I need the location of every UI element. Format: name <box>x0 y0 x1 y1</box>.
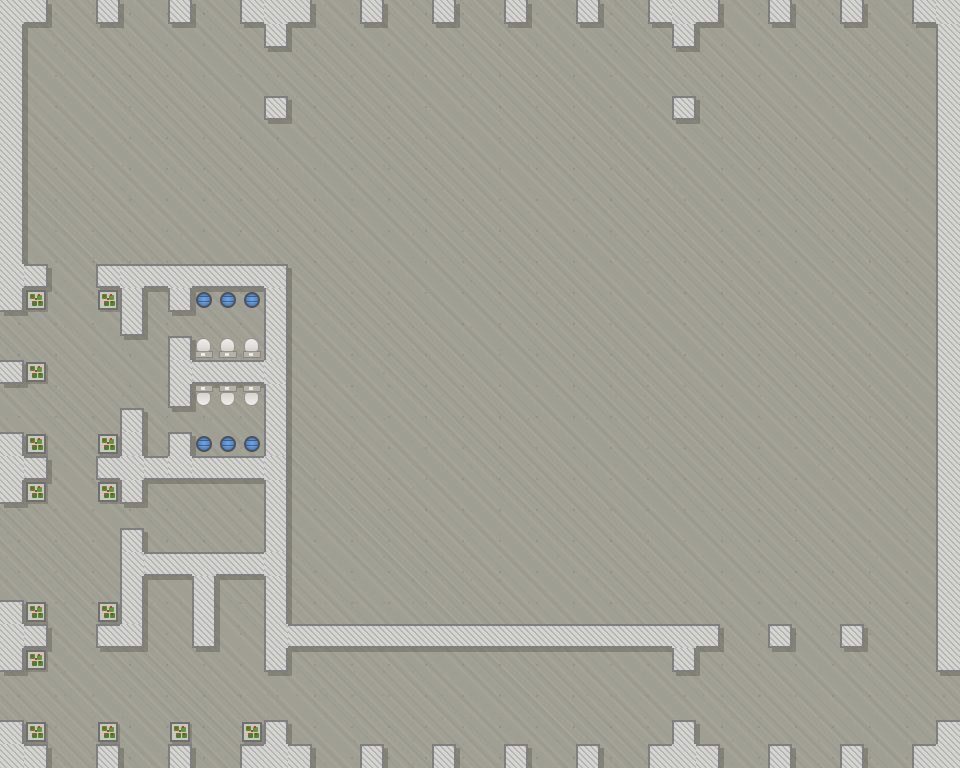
wall-tile <box>936 336 960 360</box>
wall-tile <box>264 432 288 456</box>
planter-bush[interactable] <box>242 722 262 742</box>
planter-bush[interactable] <box>26 290 46 310</box>
wall-tile <box>840 624 864 648</box>
planter-berries <box>103 607 105 609</box>
wall-tile <box>432 0 456 24</box>
toilet[interactable] <box>192 384 216 408</box>
wall-tile <box>936 264 960 288</box>
wall-tile <box>168 456 192 480</box>
wall-tile <box>648 624 672 648</box>
wall-tile <box>216 264 240 288</box>
wall-tile <box>264 336 288 360</box>
wall-tile <box>192 552 216 576</box>
wall-tile <box>936 216 960 240</box>
planter-berries <box>247 727 249 729</box>
wall-tile <box>576 624 600 648</box>
wall-tile <box>144 552 168 576</box>
planter-bush[interactable] <box>26 650 46 670</box>
wall-tile <box>168 384 192 408</box>
wall-tile <box>96 0 120 24</box>
planter-bush[interactable] <box>98 602 118 622</box>
wall-tile <box>120 288 144 312</box>
toilet-tank <box>195 351 213 358</box>
wall-tile <box>120 312 144 336</box>
planter-bush[interactable] <box>170 722 190 742</box>
wall-tile <box>360 624 384 648</box>
wall-tile <box>240 0 264 24</box>
toilet-bowl <box>220 392 235 406</box>
wall-tile <box>936 648 960 672</box>
wall-tile <box>264 600 288 624</box>
planter-berries <box>31 439 33 441</box>
wall-tile <box>240 360 264 384</box>
planter-berries <box>31 487 33 489</box>
wall-tile <box>264 312 288 336</box>
wall-tile <box>672 24 696 48</box>
wall-tile <box>480 624 504 648</box>
wall-tile <box>192 360 216 384</box>
wall-tile <box>936 144 960 168</box>
toilet-tank <box>195 385 213 392</box>
wall-tile <box>0 648 24 672</box>
wall-tile <box>696 624 720 648</box>
sink[interactable] <box>220 292 236 308</box>
wall-tile <box>192 576 216 600</box>
wall-tile <box>0 168 24 192</box>
wall-tile <box>936 624 960 648</box>
planter-berries <box>31 727 33 729</box>
wall-tile <box>264 504 288 528</box>
wall-tile <box>360 0 384 24</box>
wall-tile <box>936 288 960 312</box>
sink[interactable] <box>244 292 260 308</box>
wall-tile <box>216 552 240 576</box>
sink[interactable] <box>196 436 212 452</box>
wall-tile <box>264 648 288 672</box>
wall-tile <box>24 456 48 480</box>
toilet-tank <box>243 351 261 358</box>
wall-tile <box>504 744 528 768</box>
wall-tile <box>912 0 936 24</box>
wall-tile <box>0 192 24 216</box>
wall-tile <box>936 24 960 48</box>
wall-tile <box>936 600 960 624</box>
wall-tile <box>312 624 336 648</box>
wall-tile <box>936 48 960 72</box>
wall-tile <box>120 576 144 600</box>
wall-tile <box>264 288 288 312</box>
wall-tile <box>192 264 216 288</box>
wall-tile <box>384 624 408 648</box>
wall-tile <box>120 600 144 624</box>
sink[interactable] <box>244 436 260 452</box>
sink[interactable] <box>196 292 212 308</box>
wall-tile <box>456 624 480 648</box>
wall-tile <box>672 648 696 672</box>
wall-tile <box>0 720 24 744</box>
wall-tile <box>768 0 792 24</box>
wall-tile <box>0 624 24 648</box>
wall-tile <box>264 24 288 48</box>
wall-tile <box>168 336 192 360</box>
wall-tile <box>936 312 960 336</box>
wall-tile <box>168 552 192 576</box>
wall-tile <box>0 600 24 624</box>
wall-tile <box>288 0 312 24</box>
wall-tile <box>168 360 192 384</box>
planter-berries <box>31 367 33 369</box>
wall-tile <box>936 456 960 480</box>
wall-tile <box>120 624 144 648</box>
wall-tile <box>432 744 456 768</box>
wall-tile <box>240 744 264 768</box>
wall-tile <box>504 0 528 24</box>
wall-tile <box>648 0 672 24</box>
wall-tile <box>936 504 960 528</box>
wall-tile <box>96 744 120 768</box>
wall-tile <box>0 360 24 384</box>
wall-tile <box>120 480 144 504</box>
wall-tile <box>936 72 960 96</box>
wall-tile <box>696 0 720 24</box>
game-map-viewport[interactable] <box>0 0 960 768</box>
planter-bush[interactable] <box>26 362 46 382</box>
wall-tile <box>264 408 288 432</box>
planter-bush[interactable] <box>26 434 46 454</box>
wall-tile <box>0 432 24 456</box>
toilet[interactable] <box>240 336 264 360</box>
toilet-bowl <box>220 338 235 352</box>
toilet[interactable] <box>240 384 264 408</box>
wall-tile <box>288 744 312 768</box>
wall-tile <box>840 744 864 768</box>
toilet-tank <box>219 385 237 392</box>
wall-tile <box>168 744 192 768</box>
planter-berries <box>103 439 105 441</box>
wall-tile <box>0 72 24 96</box>
toilet-tank <box>219 351 237 358</box>
wall-tile <box>264 624 288 648</box>
wall-tile <box>936 744 960 768</box>
wall-tile <box>672 624 696 648</box>
wall-tile <box>672 720 696 744</box>
wall-tile <box>936 528 960 552</box>
toilet[interactable] <box>216 336 240 360</box>
planter-berries <box>31 655 33 657</box>
wall-tile <box>576 0 600 24</box>
wall-tile <box>0 120 24 144</box>
wall-tile <box>192 600 216 624</box>
wall-tile <box>0 240 24 264</box>
wall-tile <box>168 432 192 456</box>
wall-tile <box>240 552 264 576</box>
wall-tile <box>264 384 288 408</box>
planter-berries <box>31 607 33 609</box>
planter-berries <box>103 487 105 489</box>
wall-tile <box>168 0 192 24</box>
wall-tile <box>0 744 24 768</box>
sink[interactable] <box>220 436 236 452</box>
wall-tile <box>936 552 960 576</box>
wall-tile <box>600 624 624 648</box>
wall-tile <box>336 624 360 648</box>
wall-tile <box>912 744 936 768</box>
wall-tile <box>144 264 168 288</box>
wall-tile <box>120 552 144 576</box>
wall-tile <box>264 360 288 384</box>
wall-tile <box>120 528 144 552</box>
wall-tile <box>528 624 552 648</box>
planter-berries <box>175 727 177 729</box>
wall-tile <box>192 456 216 480</box>
wall-tile <box>0 264 24 288</box>
wall-tile <box>0 480 24 504</box>
wall-tile <box>120 408 144 432</box>
wall-tile <box>696 744 720 768</box>
toilet[interactable] <box>192 336 216 360</box>
wall-tile <box>240 264 264 288</box>
wall-tile <box>96 624 120 648</box>
wall-tile <box>936 480 960 504</box>
wall-tile <box>936 408 960 432</box>
wall-tile <box>96 264 120 288</box>
toilet-bowl <box>196 338 211 352</box>
wall-tile <box>936 576 960 600</box>
wall-tile <box>936 96 960 120</box>
wall-tile <box>936 432 960 456</box>
wall-tile <box>648 744 672 768</box>
wall-tile <box>936 120 960 144</box>
wall-tile <box>144 456 168 480</box>
planter-berries <box>103 727 105 729</box>
wall-tile <box>576 744 600 768</box>
wall-tile <box>168 288 192 312</box>
planter-berries <box>31 295 33 297</box>
planter-bush[interactable] <box>98 290 118 310</box>
wall-tile <box>672 0 696 24</box>
wall-tile <box>0 288 24 312</box>
wall-tile <box>936 0 960 24</box>
wall-tile <box>0 96 24 120</box>
wall-tile <box>216 456 240 480</box>
wall-tile <box>264 96 288 120</box>
wall-tile <box>672 96 696 120</box>
wall-tile <box>264 264 288 288</box>
wall-tile <box>264 528 288 552</box>
wall-tile <box>24 0 48 24</box>
wall-tile <box>408 624 432 648</box>
wall-tile <box>936 168 960 192</box>
planter-bush[interactable] <box>26 482 46 502</box>
wall-tile <box>0 216 24 240</box>
wall-tile <box>264 480 288 504</box>
wall-tile <box>936 360 960 384</box>
wall-tile <box>24 744 48 768</box>
wall-tile <box>504 624 528 648</box>
toilet-bowl <box>196 392 211 406</box>
toilet-tank <box>243 385 261 392</box>
planter-bush[interactable] <box>98 482 118 502</box>
wall-tile <box>936 240 960 264</box>
wall-tile <box>936 720 960 744</box>
wall-tile <box>120 264 144 288</box>
wall-tile <box>264 552 288 576</box>
wall-tile <box>264 456 288 480</box>
wall-tile <box>0 48 24 72</box>
wall-tile <box>936 384 960 408</box>
toilet-bowl <box>244 392 259 406</box>
planter-bush[interactable] <box>26 602 46 622</box>
wall-tile <box>96 456 120 480</box>
wall-tile <box>168 264 192 288</box>
wall-tile <box>552 624 576 648</box>
wall-tile <box>24 624 48 648</box>
planter-berries <box>103 295 105 297</box>
wall-tile <box>432 624 456 648</box>
toilet[interactable] <box>216 384 240 408</box>
wall-tile <box>120 456 144 480</box>
planter-bush[interactable] <box>98 434 118 454</box>
wall-tile <box>288 624 312 648</box>
wall-tile <box>0 0 24 24</box>
wall-tile <box>768 744 792 768</box>
wall-tile <box>768 624 792 648</box>
toilet-bowl <box>244 338 259 352</box>
wall-tile <box>264 744 288 768</box>
wall-tile <box>360 744 384 768</box>
wall-tile <box>0 144 24 168</box>
planter-bush[interactable] <box>98 722 118 742</box>
wall-tile <box>0 24 24 48</box>
wall-tile <box>264 576 288 600</box>
wall-tile <box>24 264 48 288</box>
planter-bush[interactable] <box>26 722 46 742</box>
wall-tile <box>672 744 696 768</box>
wall-tile <box>0 456 24 480</box>
wall-tile <box>840 0 864 24</box>
wall-tile <box>264 0 288 24</box>
wall-tile <box>120 432 144 456</box>
wall-tile <box>192 624 216 648</box>
wall-tile <box>624 624 648 648</box>
wall-tile <box>216 360 240 384</box>
wall-tile <box>240 456 264 480</box>
wall-tile <box>936 192 960 216</box>
wall-tile <box>264 720 288 744</box>
